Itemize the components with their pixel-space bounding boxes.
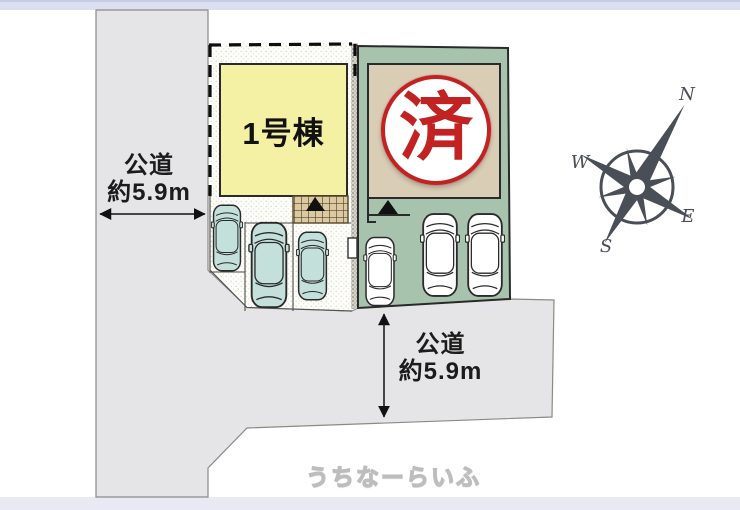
compass-east-label: E	[680, 206, 694, 227]
car-lot1-sedan-2	[296, 232, 328, 300]
sold-stamp: 済	[381, 75, 491, 185]
car-lot2-sedan-1	[420, 214, 459, 296]
watermark: うちなーらいふ	[306, 458, 481, 492]
left-road-name: 公道	[90, 152, 208, 179]
lot-divider-strip	[351, 43, 358, 309]
compass-rose: N W E S	[548, 72, 740, 276]
car-lot2-compact	[364, 238, 396, 306]
left-road-width: 約5.9m	[90, 179, 208, 206]
site-plan-canvas: N W E S 公道 約5.9m 公道 約5.9m 1号棟 済 うちなーらいふ	[0, 0, 740, 510]
site-plan-drawing: N W E S	[0, 0, 740, 510]
bottom-road-width: 約5.9m	[378, 358, 503, 385]
bottom-road-name: 公道	[378, 331, 503, 358]
left-road-label: 公道 約5.9m	[90, 152, 208, 206]
car-lot1-sedan-1	[249, 223, 289, 307]
utility-box	[348, 238, 357, 258]
lot1-building-label: 1号棟	[220, 64, 347, 196]
bottom-road-label: 公道 約5.9m	[378, 331, 503, 385]
sold-stamp-text: 済	[399, 91, 473, 165]
compass-north-label: N	[678, 84, 696, 105]
car-lot2-sedan-2	[465, 214, 504, 296]
compass-west-label: W	[571, 152, 591, 173]
car-lot1-compact	[211, 205, 242, 270]
compass-south-label: S	[600, 236, 612, 257]
